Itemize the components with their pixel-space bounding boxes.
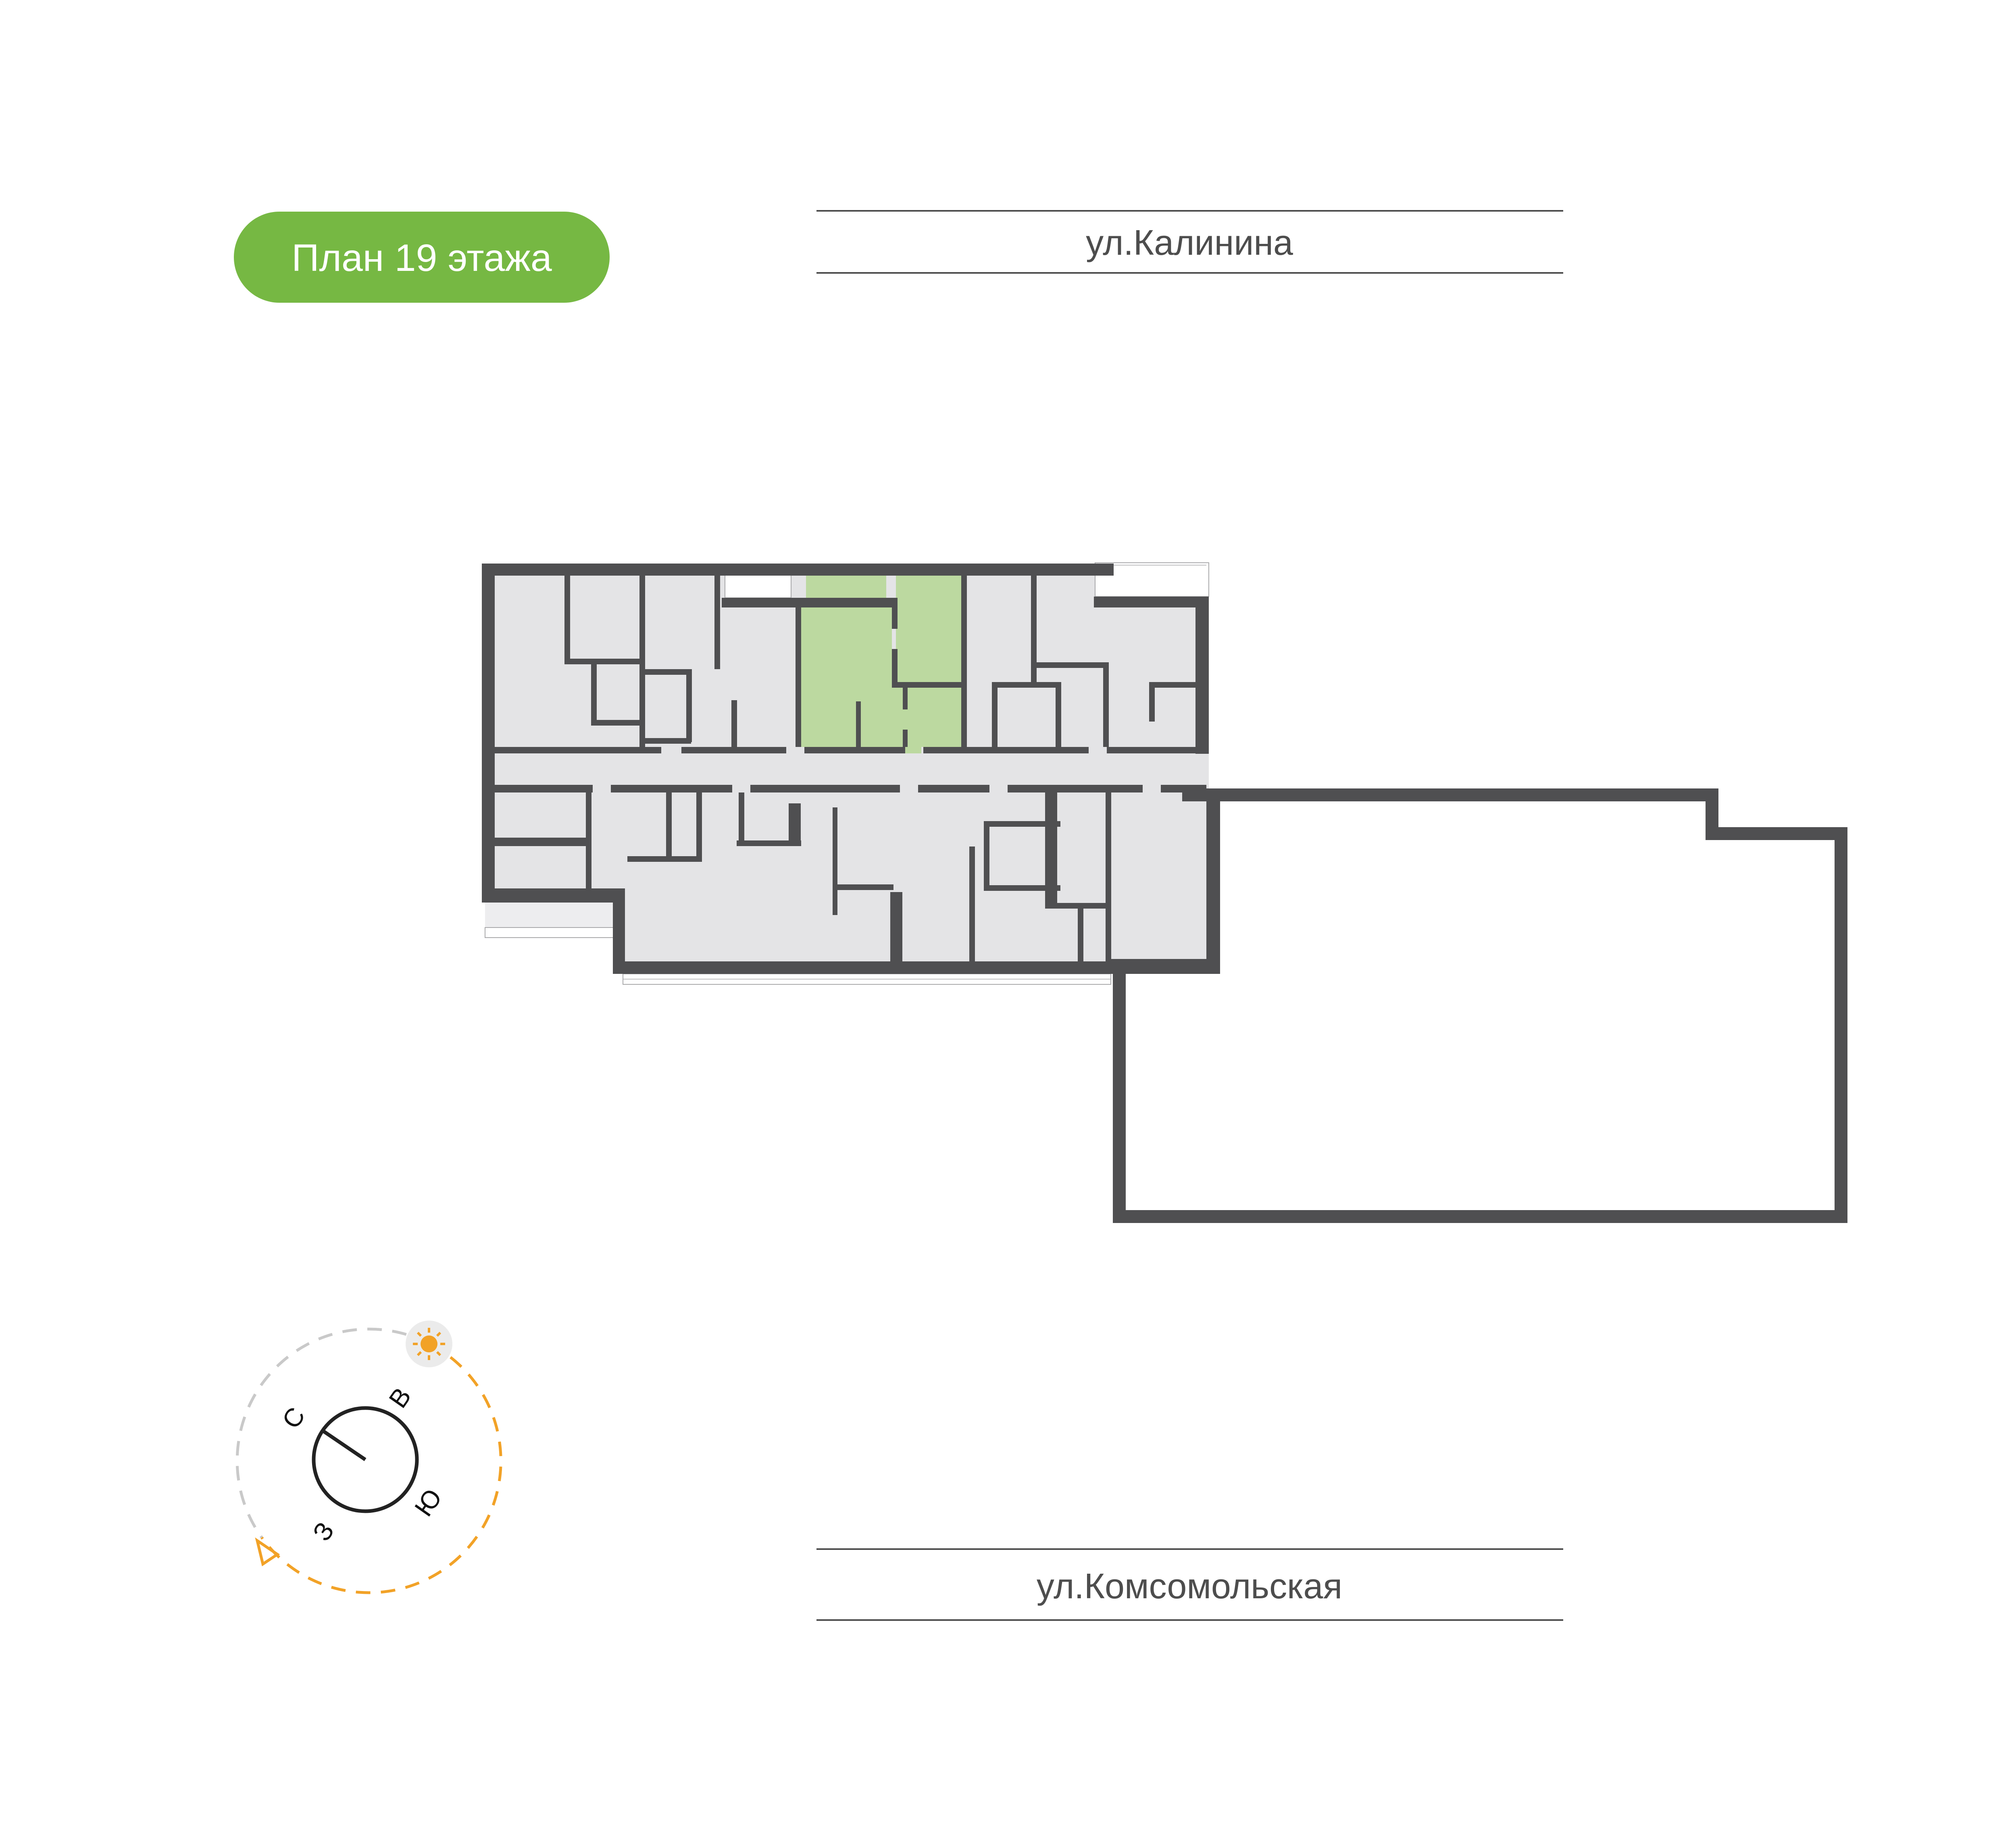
svg-text:ул.Калинина: ул.Калинина	[1086, 223, 1293, 262]
svg-text:ул.Комсомольская: ул.Комсомольская	[1037, 1566, 1342, 1606]
svg-text:План 19 этажа: План 19 этажа	[292, 237, 552, 279]
